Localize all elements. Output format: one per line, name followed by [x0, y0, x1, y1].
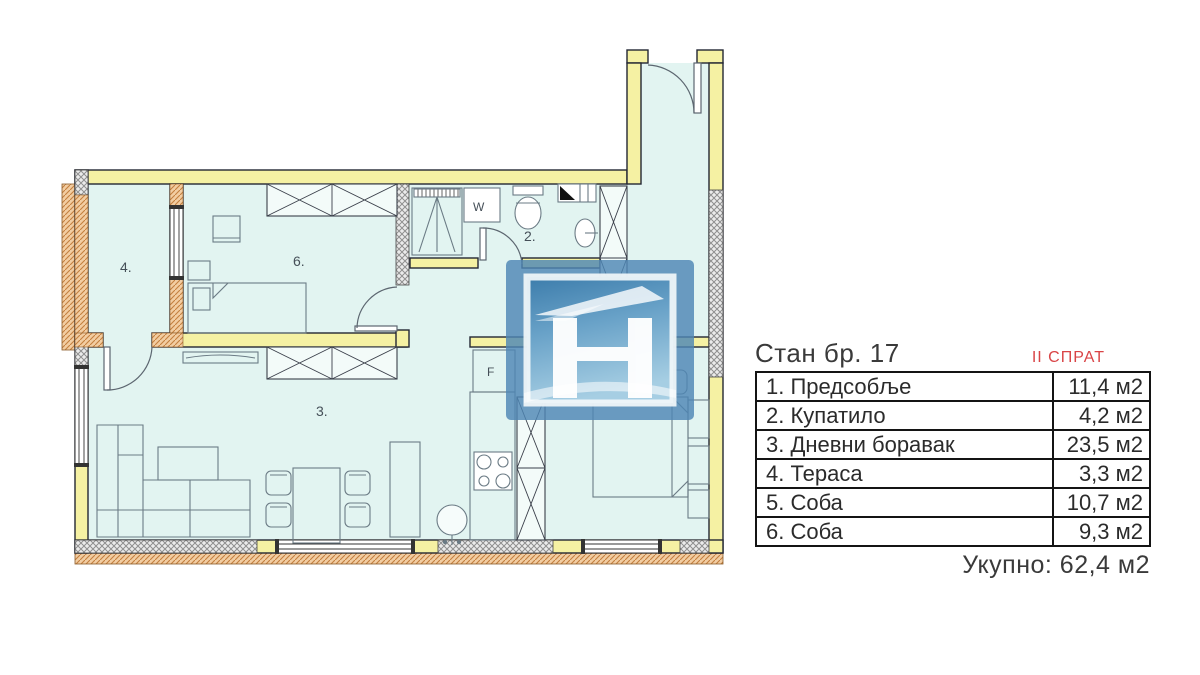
room-name: 2. Купатило: [757, 402, 1052, 429]
boiler-icon: [558, 184, 596, 202]
area-table: 1. Предсобље 11,4 м2 2. Купатило 4,2 м2 …: [755, 371, 1151, 547]
room-area: 9,3 м2: [1052, 518, 1149, 545]
room-area: 23,5 м2: [1052, 431, 1149, 458]
total-area: Укупно: 62,4 м2: [755, 551, 1151, 580]
table-row: 2. Купатило 4,2 м2: [757, 400, 1149, 429]
room-area: 10,7 м2: [1052, 489, 1149, 516]
area-table-panel: Стан бр. 17 II СПРАТ 1. Предсобље 11,4 м…: [755, 336, 1151, 580]
apartment-title: Стан бр. 17: [755, 338, 900, 369]
room-name: 4. Тераса: [757, 460, 1052, 487]
window-terrace-icon: [169, 205, 184, 280]
table-row: 3. Дневни боравак 23,5 м2: [757, 429, 1149, 458]
table-row: 6. Соба 9,3 м2: [757, 516, 1149, 545]
room-name: 5. Соба: [757, 489, 1052, 516]
label-washer: W: [473, 200, 485, 214]
floor-label: II СПРАТ: [1032, 349, 1105, 369]
wardrobe-living-icon: [267, 347, 397, 379]
toilet-icon: [513, 186, 543, 229]
apartment-floorplan-page: 4. 6. 2. 3. W F Стан бр. 17 II СПРАТ: [0, 0, 1200, 675]
window-left-icon: [74, 365, 89, 467]
panel-header: Стан бр. 17 II СПРАТ: [755, 336, 1151, 369]
label-room-3: 3.: [316, 403, 328, 419]
table-row: 1. Предсобље 11,4 м2: [757, 373, 1149, 400]
label-room-2: 2.: [524, 228, 536, 244]
table-row: 5. Соба 10,7 м2: [757, 487, 1149, 516]
table-row: 4. Тераса 3,3 м2: [757, 458, 1149, 487]
label-fridge: F: [487, 365, 494, 379]
label-room-4: 4.: [120, 259, 132, 275]
wardrobe-bedroom6-icon: [267, 184, 397, 216]
stove-icon: [474, 452, 512, 490]
room-name: 3. Дневни боравак: [757, 431, 1052, 458]
watermark-logo: [506, 260, 694, 420]
room-name: 1. Предсобље: [757, 373, 1052, 400]
label-room-6: 6.: [293, 253, 305, 269]
window-living-icon: [275, 539, 415, 554]
room-area: 11,4 м2: [1052, 373, 1149, 400]
window-bedroom5-icon: [581, 539, 662, 554]
room-area: 4,2 м2: [1052, 402, 1149, 429]
room-area: 3,3 м2: [1052, 460, 1149, 487]
room-name: 6. Соба: [757, 518, 1052, 545]
